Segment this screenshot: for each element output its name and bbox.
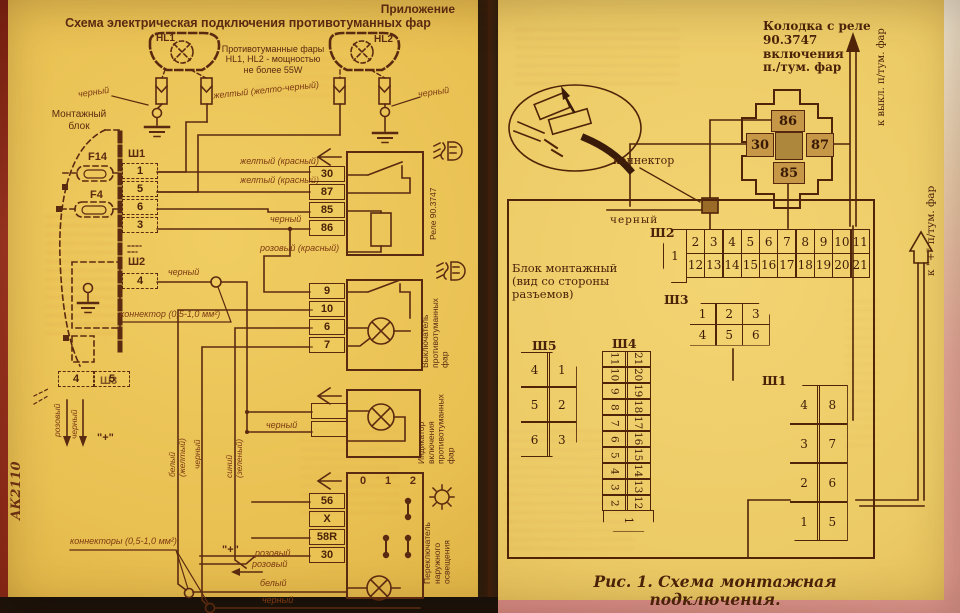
pin-cell: 14 xyxy=(625,463,651,479)
fog-beam-icon-2 xyxy=(437,262,465,280)
relay-name: Реле 90.3747 xyxy=(429,176,439,240)
relay-pad-86: 86 xyxy=(771,110,805,132)
pin-cell: 4 xyxy=(520,352,550,387)
pin-cell: 10 xyxy=(832,229,852,254)
wire-label-yellow-red: желтый (красный) xyxy=(240,175,319,185)
pin-cell: 17 xyxy=(625,415,651,431)
pin-cell: 20 xyxy=(625,367,651,383)
connector-sh3-pins: 45 xyxy=(58,371,130,387)
pin-cell: 7 xyxy=(817,424,848,463)
pin-cell: 18 xyxy=(625,399,651,415)
pin-cell: 30 xyxy=(309,166,345,182)
relay-pad-85: 85 xyxy=(773,162,805,184)
fog-switch-box xyxy=(347,280,422,370)
pin-cell: 7 xyxy=(777,229,797,254)
connector-sh3-table: 123 456 xyxy=(690,303,770,346)
pin-cell: 6 xyxy=(602,431,628,447)
switch-position-label: 2 xyxy=(410,475,416,488)
lightswitch-positions: 012 xyxy=(360,475,416,488)
pin-cell: 20 xyxy=(832,253,852,278)
wire-label-black: черный xyxy=(193,424,203,469)
page-margin-code: АК2110 xyxy=(10,428,25,520)
wire-label-black: черный xyxy=(168,267,199,277)
pin-cell: 5 xyxy=(122,181,158,197)
connector-sh2-table: 1 234567891011 12131415161718192021 xyxy=(663,229,870,283)
pin-cell: 21 xyxy=(850,253,870,278)
wire-label-white-yellow: белый (желтый) xyxy=(168,415,188,477)
fuse-f14-label: F14 xyxy=(88,151,107,164)
indicator-pins xyxy=(311,403,347,437)
pin-cell: 13 xyxy=(704,253,724,278)
pin-cell: 5 xyxy=(520,387,550,422)
pin-cell: 4 xyxy=(58,371,94,387)
indicator-box xyxy=(347,390,420,457)
pin-cell: 10 xyxy=(309,301,345,317)
pin-cell: 87 xyxy=(309,184,345,200)
pin-cell: 5 xyxy=(94,371,130,387)
pin-cell: 11 xyxy=(850,229,870,254)
pin-cell: 5 xyxy=(715,324,743,346)
wire-label-pink-red: розовый (красный) xyxy=(260,243,339,253)
wire-label-pink: розовый xyxy=(255,548,290,558)
connector-note: коннектор (0,5-1,0 мм²) xyxy=(120,309,220,319)
bottom-wires xyxy=(70,310,420,613)
pin-cell: 5 xyxy=(817,502,848,541)
switch-position-label: 1 xyxy=(385,475,391,488)
pin-cell: 6 xyxy=(520,422,550,457)
pin-cell: 6 xyxy=(309,319,345,335)
pin-cell: 1 xyxy=(603,510,654,532)
ground-icon-right xyxy=(373,108,397,143)
pin-cell: 9 xyxy=(814,229,834,254)
to-switch-label: к выкл. п/тум. фар xyxy=(876,16,888,126)
schematic-title: Схема электрическая подключения противот… xyxy=(38,16,458,30)
relay-socket-header: Колодка с реле 90.3747 включения п./тум.… xyxy=(763,20,875,75)
pin-cell: 11 xyxy=(602,351,628,367)
pin-cell: X xyxy=(309,511,345,527)
wire-label-black: черный xyxy=(70,405,80,439)
fuse-f4-label: F4 xyxy=(90,189,103,202)
pin-cell: 6 xyxy=(817,463,848,502)
pin-cell: 17 xyxy=(777,253,797,278)
scanned-manual-spread: Приложение Схема электрическая подключен… xyxy=(0,0,960,613)
relay-box xyxy=(347,152,423,255)
pin-cell: 8 xyxy=(817,385,848,424)
pin-cell: 2 xyxy=(686,229,706,254)
pin-cell: 1 xyxy=(663,229,687,283)
lightswitch-name: Переключатель наружного освещения xyxy=(423,522,452,584)
pin-cell: 3 xyxy=(704,229,724,254)
pin-cell: 85 xyxy=(309,202,345,218)
lightswitch-box xyxy=(347,473,423,600)
connector-callout-label: коннектор xyxy=(613,155,674,168)
wire-label-pink: розовый xyxy=(252,559,287,569)
relay-pad-87: 87 xyxy=(806,133,834,157)
connector-sh3-label: Ш3 xyxy=(664,293,689,307)
pin-cell-blank xyxy=(311,421,347,437)
pin-cell: 16 xyxy=(625,431,651,447)
pin-cell: 7 xyxy=(602,415,628,431)
lamp-hl2-label: HL2 xyxy=(374,34,393,46)
pin-cell: 13 xyxy=(625,479,651,495)
pin-cell: 4 xyxy=(122,273,158,289)
pin-cell: 3 xyxy=(602,479,628,495)
connectors-note: коннекторы (0,5-1,0 мм²) xyxy=(70,536,177,546)
connector-sh4-label: Ш4 xyxy=(612,337,637,351)
connector-sh1-pins: 1563 xyxy=(122,163,158,233)
pin-cell: 14 xyxy=(722,253,742,278)
connector-sh1-table: 4321 8765 xyxy=(790,385,848,541)
lightswitch-pins: 56X58R30 xyxy=(309,493,345,563)
pin-cell: 8 xyxy=(602,399,628,415)
pin-cell: 18 xyxy=(795,253,815,278)
pin-cell: 58R xyxy=(309,529,345,545)
fog-beam-icon-1 xyxy=(434,142,462,160)
connector-sh4-table: 111098765432 21201918171615141312 1 xyxy=(603,351,654,532)
pin-cell: 16 xyxy=(759,253,779,278)
wire-label-white: белый xyxy=(260,578,286,588)
plus-label: "+" xyxy=(222,544,239,557)
pin-cell-blank xyxy=(311,403,347,419)
pin-cell: 2 xyxy=(547,387,577,422)
fog-switch-pins: 91067 xyxy=(309,283,345,353)
connector-sh2-label: Ш2 xyxy=(128,256,145,269)
connector-sh1-label: Ш1 xyxy=(128,148,145,161)
pin-cell: 86 xyxy=(309,220,345,236)
connector-sh1-label: Ш1 xyxy=(762,374,787,388)
ground-icon-left xyxy=(145,109,169,137)
connector-sh5-table: 456 123 xyxy=(521,352,577,457)
wire-label-black: черный xyxy=(266,420,297,430)
to-plus-label: к "+" п/тум. фар xyxy=(925,126,937,276)
fog-lamp-caption: Противотуманные фары HL1, HL2 - мощность… xyxy=(218,44,328,75)
pin-cell: 9 xyxy=(602,383,628,399)
pin-cell: 10 xyxy=(602,367,628,383)
pin-cell: 6 xyxy=(742,324,770,346)
pin-cell: 3 xyxy=(789,424,820,463)
pin-cell: 2 xyxy=(789,463,820,502)
wire-label-black: черный xyxy=(270,214,301,224)
pin-cell: 30 xyxy=(309,547,345,563)
pin-cell: 3 xyxy=(122,217,158,233)
switch-position-label: 0 xyxy=(360,475,366,488)
pin-cell: 7 xyxy=(309,337,345,353)
pin-cell: 1 xyxy=(122,163,158,179)
fog-switch-name: Выключатель противотуманных фар xyxy=(421,282,450,368)
lamp-hl1-label: HL1 xyxy=(156,33,175,45)
pin-cell: 6 xyxy=(759,229,779,254)
pin-cell: 19 xyxy=(625,383,651,399)
mount-block-view-label: Блок монтажный (вид со стороны разъемов) xyxy=(512,262,642,302)
pin-cell: 9 xyxy=(309,283,345,299)
pin-cell: 5 xyxy=(741,229,761,254)
pin-cell: 4 xyxy=(602,463,628,479)
pin-cell: 12 xyxy=(625,495,651,511)
pin-cell: 8 xyxy=(795,229,815,254)
plus-label: "+" xyxy=(97,432,114,445)
wire-label-pink: розовый xyxy=(53,403,63,437)
indicator-name: Индикатор включения противотуманных фар xyxy=(417,384,456,464)
pin-cell: 56 xyxy=(309,493,345,509)
pin-cell: 19 xyxy=(814,253,834,278)
appendix-label: Приложение xyxy=(355,3,455,17)
pin-cell: 4 xyxy=(722,229,742,254)
pin-cell: 15 xyxy=(741,253,761,278)
wire-label-black: черный xyxy=(262,595,293,605)
pin-cell: 15 xyxy=(625,447,651,463)
relay-pins: 30878586 xyxy=(309,166,345,236)
connector-sh2-pins: 4 xyxy=(122,273,158,289)
pin-cell: 5 xyxy=(602,447,628,463)
pin-cell: 2 xyxy=(602,495,628,511)
pin-cell: 2 xyxy=(715,303,743,325)
relay-pad-30: 30 xyxy=(746,133,774,157)
connector-sh5-label: Ш5 xyxy=(532,339,557,353)
pin-cell: 6 xyxy=(122,199,158,215)
ground-icon-block xyxy=(78,284,98,313)
relay-pad-center xyxy=(775,132,803,160)
wire-label-blue-green: синий (зеленый) xyxy=(225,414,245,478)
figure-caption: Рис. 1. Схема монтажная подключения. xyxy=(540,573,890,609)
sun-icon xyxy=(430,485,454,509)
pin-cell: 4 xyxy=(689,324,717,346)
pin-cell: 1 xyxy=(789,502,820,541)
wire-label-yellow-red: желтый (красный) xyxy=(240,156,319,166)
pin-cell: 12 xyxy=(686,253,706,278)
mount-block-label: Монтажный блок xyxy=(48,109,110,132)
pin-cell: 21 xyxy=(625,351,651,367)
